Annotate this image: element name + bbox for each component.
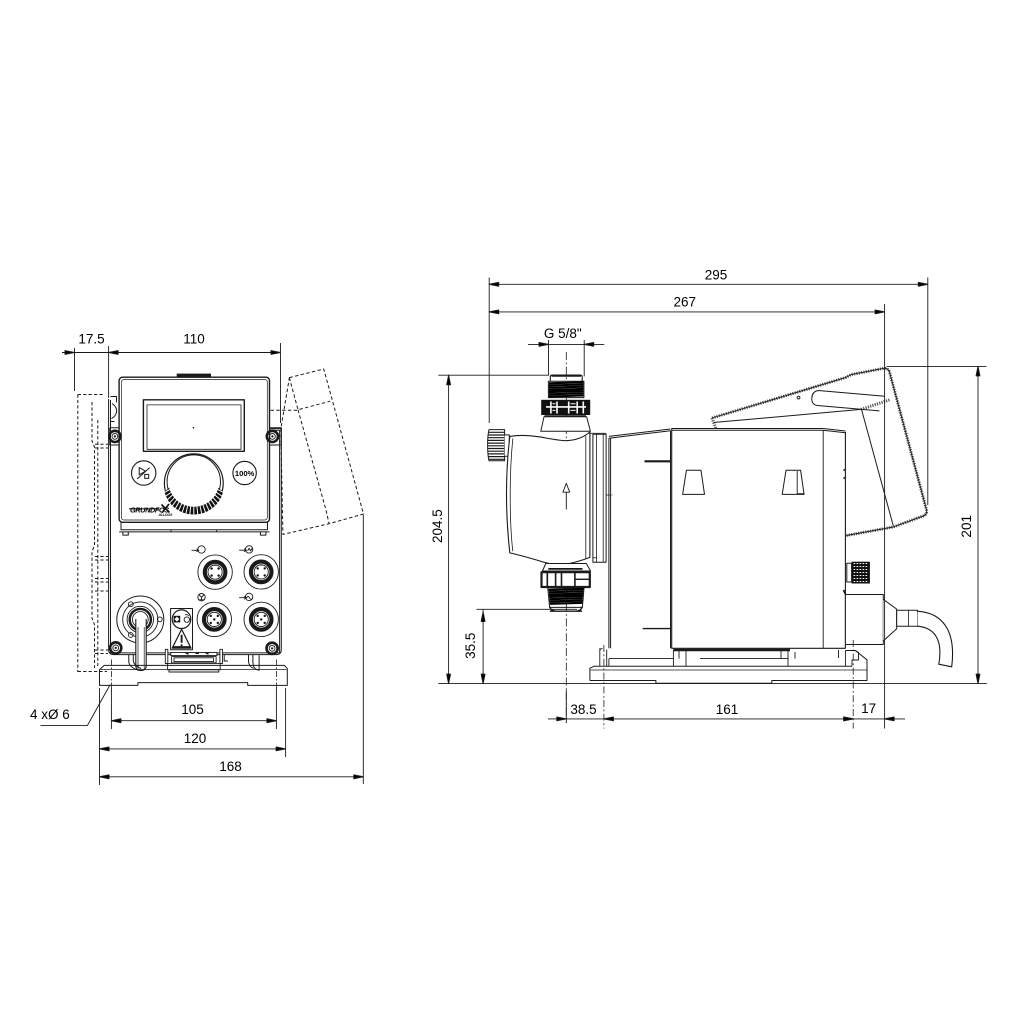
svg-text:100%: 100%	[235, 469, 255, 478]
svg-text:120: 120	[184, 731, 207, 746]
svg-text:105: 105	[181, 702, 204, 717]
svg-text:161: 161	[716, 702, 739, 717]
svg-text:ALLDOS: ALLDOS	[158, 513, 174, 517]
svg-text:17.5: 17.5	[78, 332, 104, 347]
svg-text:110: 110	[183, 332, 205, 347]
svg-text:17: 17	[861, 701, 876, 716]
svg-text:G 5/8": G 5/8"	[544, 326, 582, 341]
svg-text:201: 201	[959, 515, 974, 538]
svg-text:38.5: 38.5	[570, 702, 596, 717]
svg-text:267: 267	[674, 295, 697, 310]
svg-text:35.5: 35.5	[463, 633, 478, 659]
svg-text:204.5: 204.5	[430, 509, 445, 543]
svg-text:295: 295	[705, 268, 728, 283]
svg-text:168: 168	[219, 759, 242, 774]
svg-text:4 xØ 6: 4 xØ 6	[30, 707, 70, 722]
